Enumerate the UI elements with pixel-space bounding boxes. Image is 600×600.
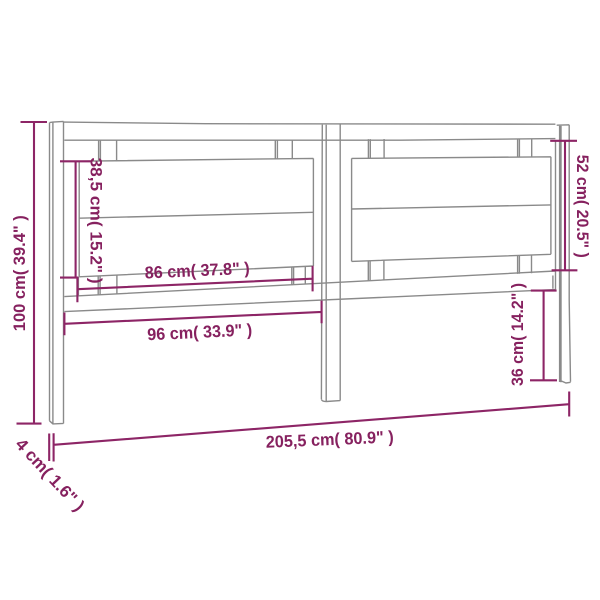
svg-text:36 cm( 14.2" ): 36 cm( 14.2" ) [508, 283, 527, 386]
svg-text:38,5 cm( 15.2" ): 38,5 cm( 15.2" ) [87, 158, 106, 284]
svg-text:52 cm( 20.5" ): 52 cm( 20.5" ) [573, 155, 592, 258]
svg-text:100 cm( 39.4" ): 100 cm( 39.4" ) [10, 215, 29, 331]
